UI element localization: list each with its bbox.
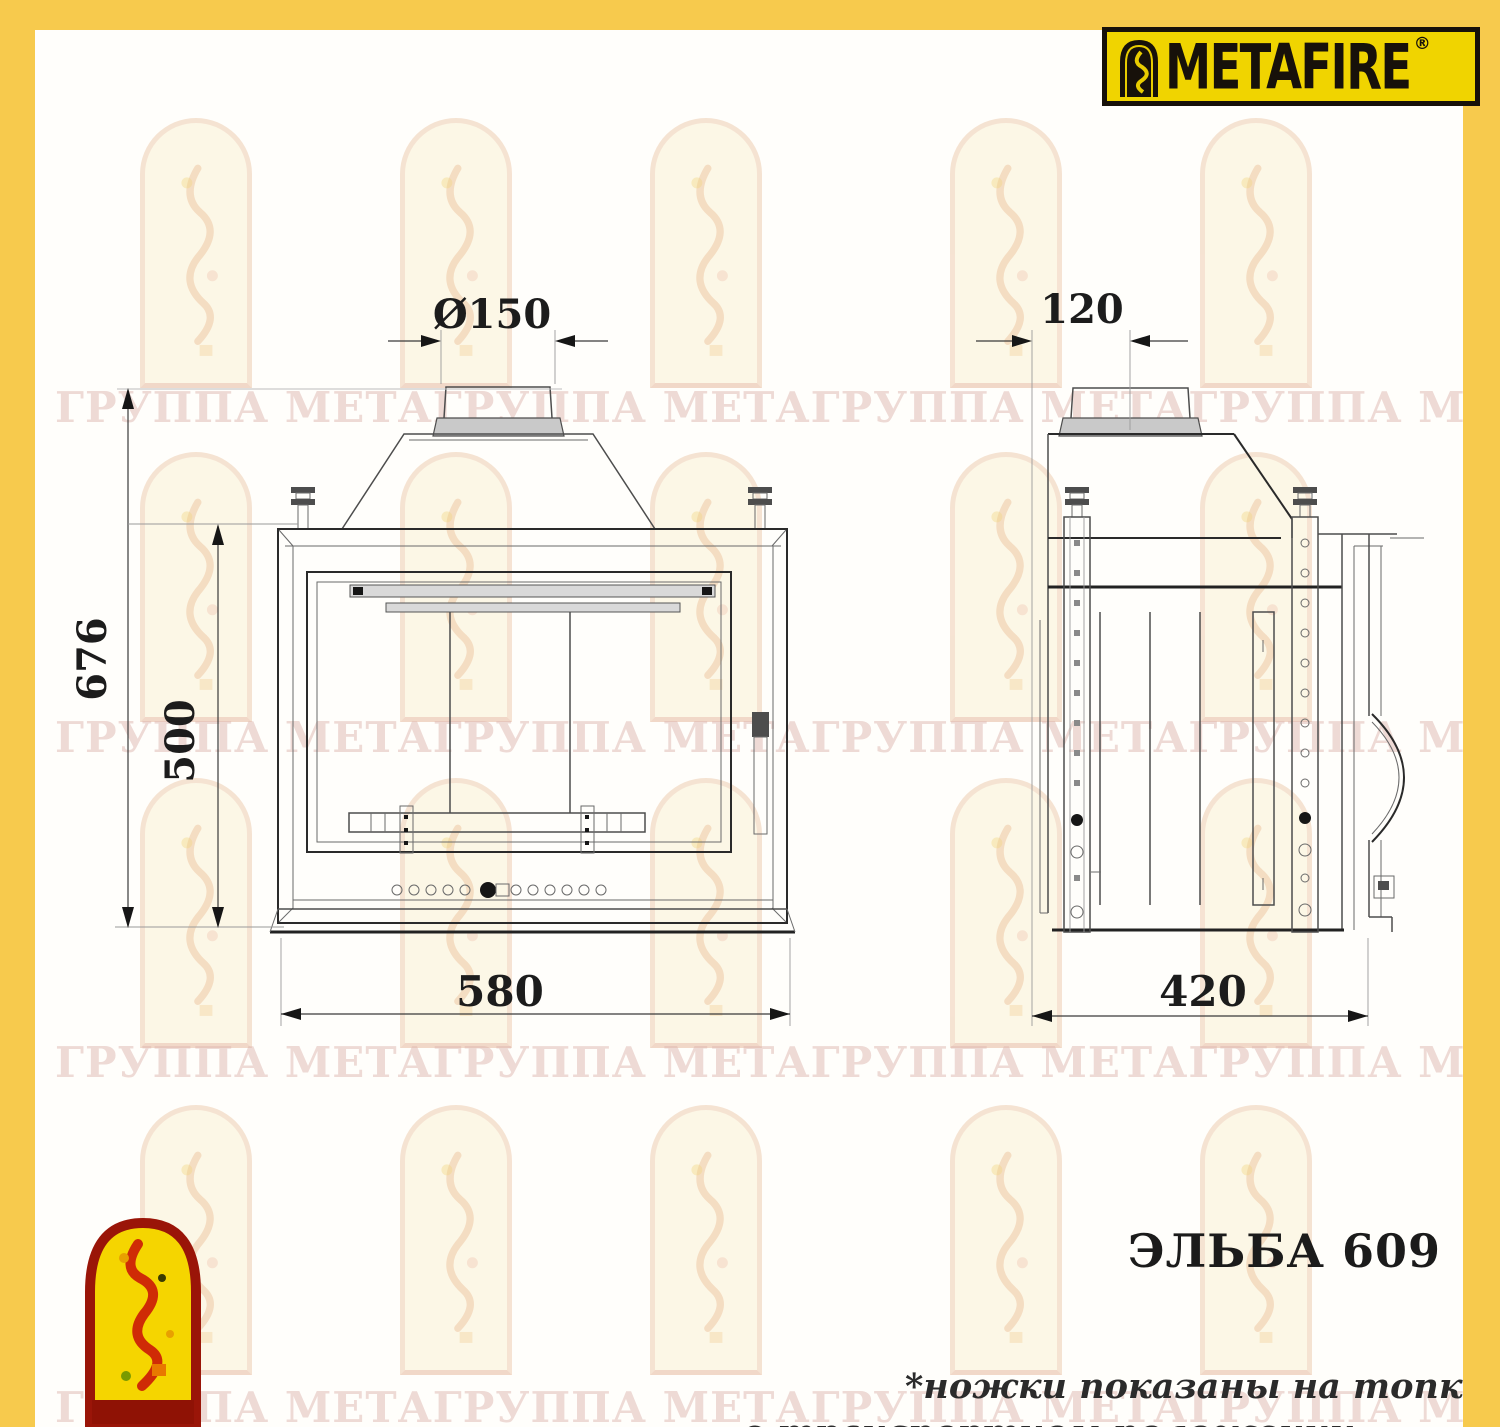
- front-bolt-left: [291, 487, 315, 529]
- transport-leg-right: [1292, 487, 1318, 932]
- page-border-right: [1463, 0, 1500, 1427]
- metafire-logo-text: METAFIRE: [1165, 35, 1410, 98]
- front-view-dimensions: Ø150 676 500 580: [69, 291, 790, 1026]
- air-control-knob: [480, 882, 496, 898]
- dim-label-flue-diameter: Ø150: [433, 291, 551, 338]
- metafire-arch-flame-icon: [1115, 36, 1165, 98]
- side-view-dimensions: 120 420: [976, 286, 1368, 1026]
- footnote-line2: в транспортном положении: [742, 1412, 1355, 1427]
- door-latch: [752, 712, 769, 737]
- dim-label-overall-height: 676: [69, 617, 116, 701]
- side-view-drawing: [1040, 388, 1424, 932]
- technical-drawing: Ø150 676 500 580: [0, 0, 1500, 1427]
- catalog-page: ГРУППА МЕТАГРУППА МЕТАГРУППА МЕТАГРУППА …: [0, 0, 1500, 1427]
- page-border-left: [0, 0, 35, 1427]
- dim-label-width: 580: [456, 967, 544, 1016]
- footnote-line1: *ножки показаны на топке: [905, 1366, 1485, 1407]
- product-model-name: ЭЛЬБА 609: [1128, 1224, 1428, 1278]
- transport-leg-left: [1064, 487, 1090, 932]
- air-vent-row: [392, 882, 606, 898]
- front-bolt-right: [748, 487, 772, 529]
- dim-label-depth: 420: [1159, 967, 1247, 1016]
- dim-label-flue-offset: 120: [1040, 286, 1124, 333]
- registered-trademark-icon: ®: [1414, 34, 1431, 54]
- metagroup-arch-emblem: [82, 1214, 202, 1427]
- page-border-top: [0, 0, 1500, 30]
- front-view-drawing: [270, 387, 795, 932]
- dim-label-door-height: 500: [157, 699, 204, 783]
- metafire-logo: METAFIRE ®: [1102, 27, 1480, 106]
